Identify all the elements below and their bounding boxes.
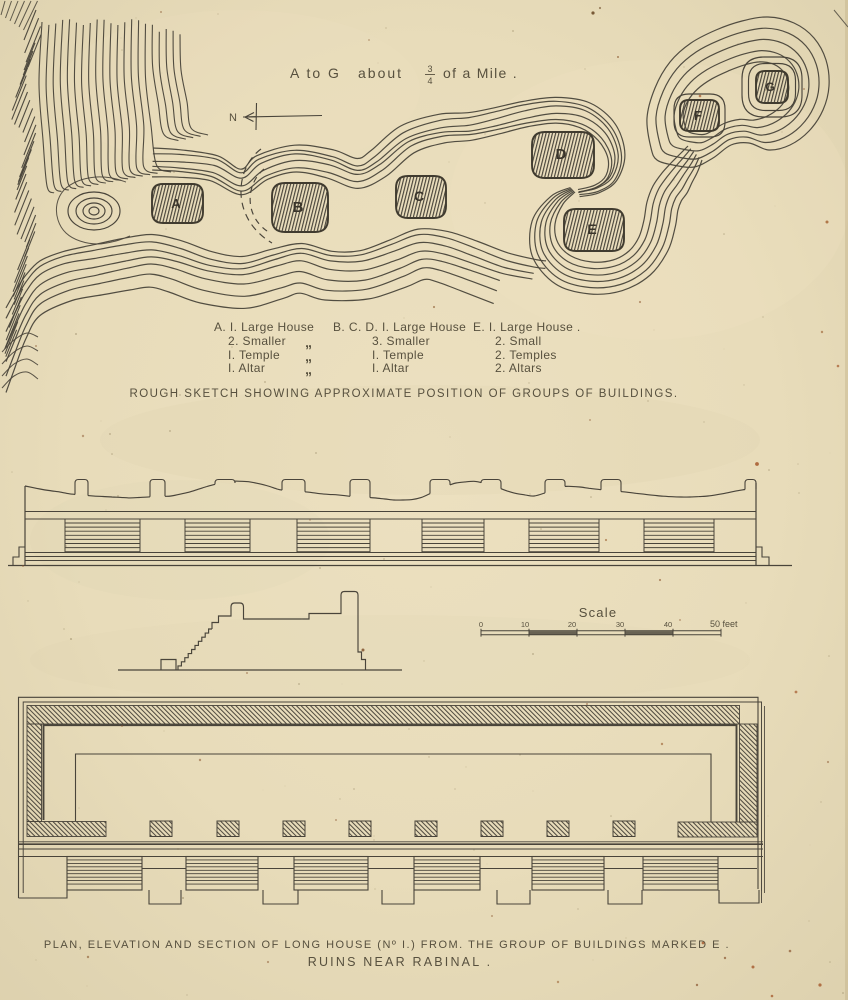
- svg-text:C: C: [414, 188, 424, 204]
- svg-text:10: 10: [521, 620, 529, 629]
- svg-text:2. Smaller: 2. Smaller: [228, 334, 286, 348]
- svg-text:about: about: [358, 65, 403, 81]
- svg-text:E: E: [587, 221, 596, 237]
- svg-text:ROUGH SKETCH SHOWING APPROXIMA: ROUGH SKETCH SHOWING APPROXIMATE POSITIO…: [130, 388, 679, 400]
- svg-text:G: G: [765, 80, 774, 94]
- svg-text:I. Altar: I. Altar: [372, 361, 409, 375]
- svg-text:3. Smaller: 3. Smaller: [372, 334, 430, 348]
- svg-text:D: D: [556, 146, 567, 163]
- svg-text:2. Altars: 2. Altars: [495, 361, 542, 375]
- svg-text:B. C. D. I. Large House: B. C. D. I. Large House: [333, 320, 466, 334]
- svg-text:N: N: [229, 112, 237, 124]
- svg-text:I. Altar: I. Altar: [228, 361, 265, 375]
- svg-text:I. Temple: I. Temple: [372, 348, 424, 362]
- svg-text:20: 20: [568, 620, 576, 629]
- svg-text:A: A: [171, 196, 181, 211]
- svg-text:of a Mile .: of a Mile .: [443, 65, 518, 81]
- svg-text:0: 0: [479, 620, 483, 629]
- svg-text:„: „: [305, 361, 312, 377]
- svg-text:B: B: [293, 199, 304, 216]
- svg-text:4: 4: [427, 76, 432, 86]
- svg-text:2. Temples: 2. Temples: [495, 348, 557, 362]
- svg-text:A. I. Large House: A. I. Large House: [214, 320, 314, 334]
- svg-text:Scale: Scale: [579, 605, 618, 620]
- svg-text:F: F: [694, 108, 702, 123]
- svg-text:2. Small: 2. Small: [495, 334, 542, 348]
- svg-text:RUINS NEAR RABINAL .: RUINS NEAR RABINAL .: [308, 955, 493, 969]
- svg-text:I. Temple: I. Temple: [228, 348, 280, 362]
- svg-text:40: 40: [664, 620, 672, 629]
- svg-text:PLAN, ELEVATION AND SECTION OF: PLAN, ELEVATION AND SECTION OF LONG HOUS…: [44, 939, 730, 951]
- svg-text:50 feet: 50 feet: [710, 619, 738, 629]
- svg-text:E. I. Large House .: E. I. Large House .: [473, 320, 581, 334]
- svg-text:3: 3: [427, 64, 432, 74]
- svg-text:30: 30: [616, 620, 624, 629]
- svg-text:A to G: A to G: [290, 65, 341, 81]
